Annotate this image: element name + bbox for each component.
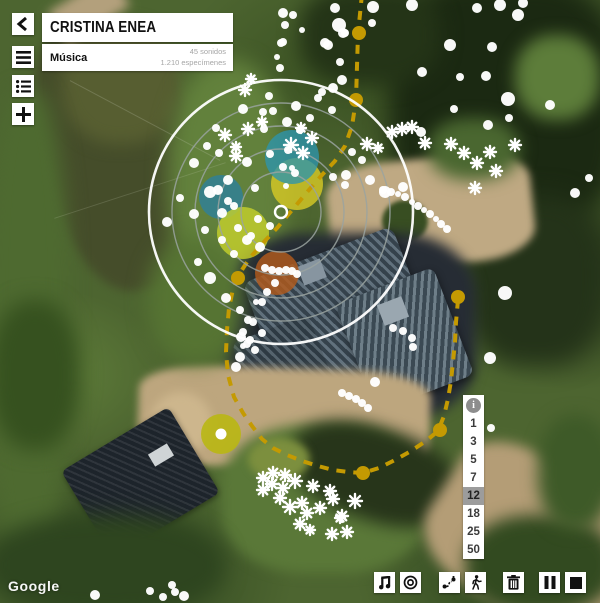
listener-marker[interactable] <box>275 206 287 218</box>
specimens-count: 1.210 especímenes <box>161 58 226 67</box>
place-title-card: CRISTINA ENEA <box>42 13 233 42</box>
route-node[interactable] <box>433 423 447 437</box>
route-node[interactable] <box>352 26 366 40</box>
layer-label: Música <box>50 52 87 64</box>
back-icon <box>15 16 31 32</box>
route-node[interactable] <box>356 466 370 480</box>
map-viewport[interactable]: CRISTINA ENEA Música 45 sonidos 1.210 es… <box>0 0 600 603</box>
route-icon <box>442 575 457 590</box>
menu-button[interactable] <box>12 46 34 68</box>
stop-button[interactable] <box>565 572 586 593</box>
sound-data-overlay[interactable] <box>0 0 600 603</box>
back-button[interactable] <box>12 13 34 35</box>
menu-icon <box>16 51 31 64</box>
sound-bubbles[interactable] <box>199 130 323 454</box>
walk-button[interactable] <box>465 572 486 593</box>
target-icon <box>403 575 418 590</box>
list-button[interactable] <box>12 75 34 97</box>
pause-icon <box>544 576 556 589</box>
plus-icon <box>16 107 31 122</box>
scale-option-1[interactable]: 1 <box>463 415 484 433</box>
info-button[interactable]: i <box>463 395 484 415</box>
stop-icon <box>570 577 582 589</box>
trash-icon <box>507 575 520 590</box>
music-button[interactable] <box>374 572 395 593</box>
bubble-center-dot <box>216 429 227 440</box>
layer-stats: 45 sonidos 1.210 especímenes <box>161 47 226 67</box>
trash-button[interactable] <box>503 572 524 593</box>
layer-card[interactable]: Música 45 sonidos 1.210 especímenes <box>42 44 233 71</box>
list-icon <box>16 80 31 93</box>
scale-option-25[interactable]: 25 <box>463 523 484 541</box>
walk-icon <box>469 575 483 590</box>
sounds-count: 45 sonidos <box>190 47 226 56</box>
scale-option-3[interactable]: 3 <box>463 433 484 451</box>
target-button[interactable] <box>400 572 421 593</box>
google-attribution: Google <box>8 578 60 594</box>
zoom-in-button[interactable] <box>12 103 34 125</box>
music-icon <box>378 576 392 590</box>
scale-option-50[interactable]: 50 <box>463 541 484 559</box>
scale-option-5[interactable]: 5 <box>463 451 484 469</box>
route-node[interactable] <box>451 290 465 304</box>
page-title: CRISTINA ENEA <box>50 19 156 37</box>
scale-options: 135712182550 <box>463 415 484 559</box>
sonar-rings <box>149 80 413 344</box>
filter-scale: i 135712182550 <box>463 395 484 559</box>
scale-option-18[interactable]: 18 <box>463 505 484 523</box>
pause-button[interactable] <box>539 572 560 593</box>
scale-option-12[interactable]: 12 <box>463 487 484 505</box>
scale-option-7[interactable]: 7 <box>463 469 484 487</box>
info-icon: i <box>466 398 481 413</box>
route-button[interactable] <box>439 572 460 593</box>
